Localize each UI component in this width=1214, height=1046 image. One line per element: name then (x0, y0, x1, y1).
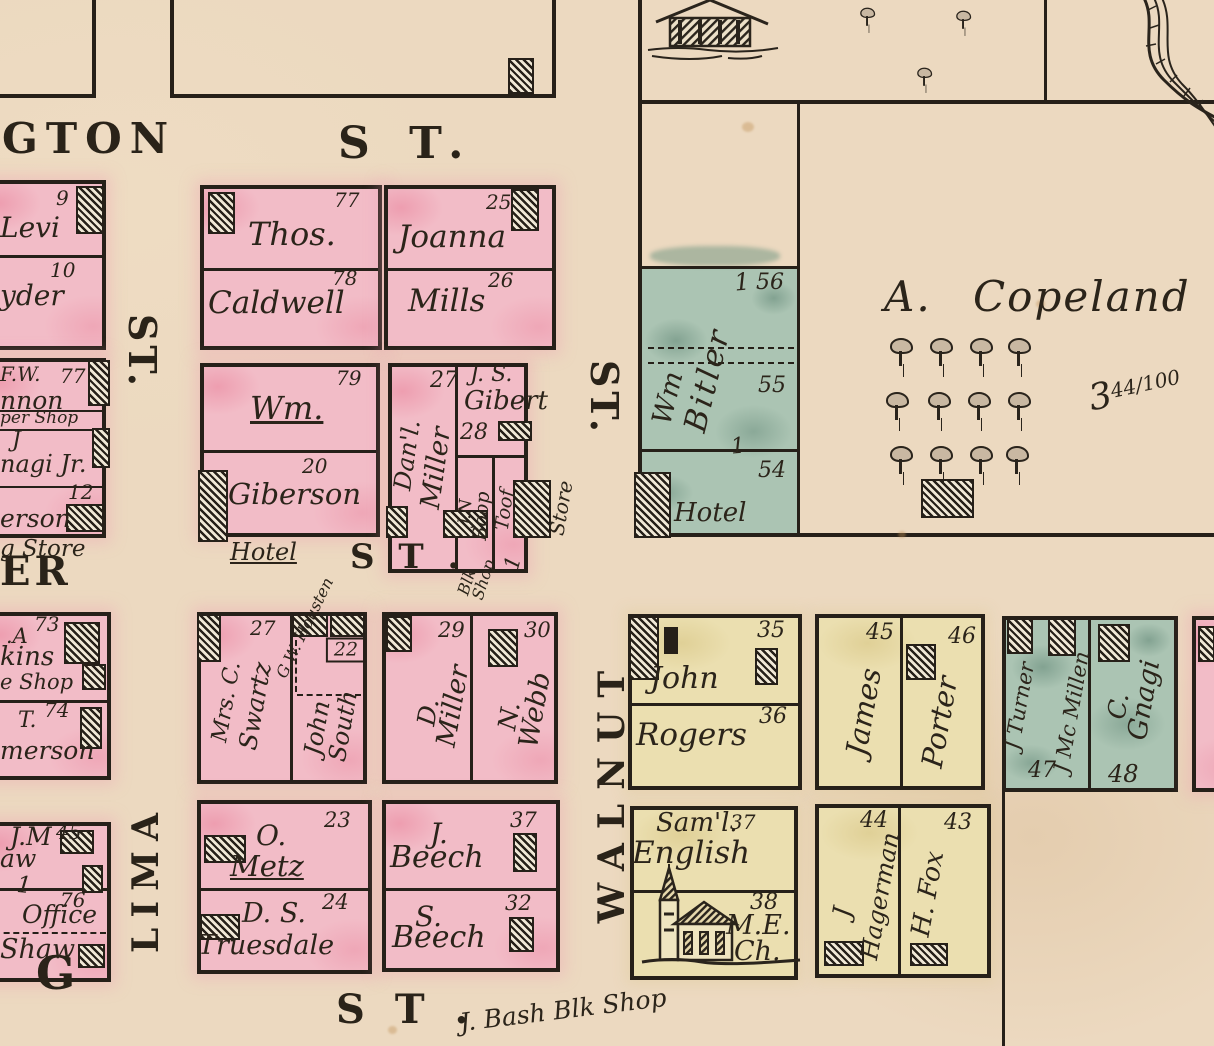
building-footprint (921, 479, 974, 518)
acreage: 344/100 (1086, 363, 1185, 418)
building-footprint (664, 627, 678, 654)
building-footprint (488, 629, 518, 667)
lot-number: 37 (730, 812, 755, 832)
building-footprint (198, 470, 228, 542)
lot-number: 55 (758, 375, 786, 397)
building-footprint (64, 622, 100, 664)
owner-name: yder (0, 282, 64, 310)
lot-number: 77 (334, 190, 359, 210)
owner-name: Shaw (0, 936, 75, 963)
annotation-cooper-shop: per Shop (0, 410, 78, 427)
tree-icon (1008, 338, 1032, 370)
lot-number: 48 (1108, 762, 1139, 786)
lot-number: 35 (757, 620, 785, 642)
lot-number: 44 (860, 810, 888, 832)
building-footprint (508, 58, 534, 94)
owner-name: kins (0, 644, 54, 670)
house-sketch-icon (648, 0, 778, 64)
street-label-st-middle: S T . (350, 540, 465, 574)
lot-line (898, 806, 901, 976)
building-footprint (330, 614, 365, 637)
acreage-fraction: 44/100 (1108, 365, 1182, 403)
tree-icon (970, 338, 994, 370)
owner-name: Caldwell (208, 288, 345, 319)
building-footprint (66, 504, 104, 532)
tree-icon (1006, 446, 1030, 478)
building-footprint (1098, 624, 1130, 662)
building-footprint (92, 428, 110, 468)
lot-number: 36 (759, 706, 787, 728)
owner-name: J (12, 430, 21, 452)
building-footprint (1198, 626, 1214, 662)
owner-name: Thos. (248, 218, 336, 250)
lot-number: 30 (524, 620, 551, 641)
annotation-bash-blk-shop: J. Bash Blk Shop (458, 985, 667, 1035)
lot-number: 32 (505, 893, 532, 914)
owner-name: Beech (390, 843, 484, 873)
tree-icon (970, 446, 994, 478)
property-line (1002, 792, 1005, 1046)
lot-number: 25 (486, 192, 511, 212)
annotation-shoe-shop: e Shop (0, 672, 73, 693)
lot-line (900, 616, 903, 788)
lot-line (204, 450, 376, 453)
survey-mark: 1 (733, 269, 750, 294)
building-footprint (208, 192, 235, 234)
tree-icon (890, 446, 914, 478)
lot-number: 27 (250, 618, 275, 638)
lot-number: 22 (326, 638, 366, 663)
building-footprint (386, 616, 412, 652)
lot-line (1088, 618, 1091, 790)
owner-name: nagi Jr. (0, 452, 87, 476)
owner-name: Boop (471, 491, 493, 541)
lot-number: 27 (430, 370, 458, 392)
owner-name: Metz (230, 852, 304, 881)
owner-name: erson (0, 506, 71, 531)
building-footprint (509, 917, 534, 952)
lot-number: 10 (50, 260, 75, 280)
street-label-st-left: ST. (123, 314, 161, 390)
tree-icon (930, 338, 954, 370)
block-top-left (0, 0, 96, 98)
shrub-icon (860, 8, 876, 29)
owner-name: F.W. (0, 364, 41, 384)
street-label-st-right: ST. (585, 360, 623, 436)
block-line (638, 533, 1214, 537)
owner-name: Rogers (636, 720, 747, 751)
lot-line (797, 102, 800, 533)
tree-icon (928, 392, 952, 424)
lot-number: 77 (60, 366, 85, 386)
tree-icon (968, 392, 992, 424)
survey-mark: 1 (730, 435, 746, 458)
owner-name: Gibert (464, 388, 548, 414)
lot-number: 23 (324, 810, 351, 831)
owner-name: Wm. (250, 392, 323, 424)
annotation-hotel: Hotel (674, 500, 746, 526)
lot-number: 74 (44, 700, 69, 720)
lot-number: 37 (510, 810, 537, 831)
lot-line (642, 266, 797, 269)
owner-name: Truesdale (198, 932, 334, 959)
owner-name: English (632, 838, 750, 869)
lot-number: 45 (56, 822, 81, 842)
lot-line (388, 268, 552, 271)
building-footprint (910, 943, 948, 966)
owner-name: Giberson (228, 480, 361, 509)
paper-stain (898, 531, 906, 538)
building-footprint (82, 865, 103, 893)
lot-number: 24 (322, 892, 349, 913)
lot-line (470, 614, 473, 782)
building-footprint (88, 360, 110, 406)
owner-name: D. S. (242, 900, 306, 927)
annotation-drug-store: g Store (0, 538, 86, 561)
lot-number: 79 (336, 368, 361, 388)
owner-name: O. (256, 822, 286, 850)
building-footprint (755, 648, 778, 685)
tree-icon (890, 338, 914, 370)
lot-number: 26 (488, 270, 513, 290)
annotation-office: Office (22, 902, 97, 927)
street-label-walnut: WALNUT (594, 657, 630, 923)
owner-name: merson (0, 738, 94, 763)
block-line (1044, 0, 1047, 100)
lot-number: 45 (866, 622, 894, 644)
lot-number: 46 (948, 626, 976, 648)
building-footprint (386, 506, 408, 538)
paper-stain (742, 122, 754, 132)
owner-name: T. (18, 710, 36, 732)
shrub-icon (917, 68, 933, 89)
owner-name: John (650, 664, 719, 694)
owner-name: Levi (0, 214, 60, 242)
building-footprint (76, 186, 104, 234)
annotation-hotel: Hotel (230, 540, 297, 564)
street-label-st-bottom: S T . (336, 990, 476, 1030)
street-label-st-top: S T. (338, 122, 475, 166)
building-footprint (498, 421, 532, 441)
river-icon (1098, 0, 1214, 153)
block-top-second (170, 0, 556, 98)
building-footprint (78, 944, 105, 968)
shrub-icon (956, 11, 972, 32)
lot-number: 43 (944, 812, 972, 834)
owner-name: Joanna (398, 222, 506, 253)
building-footprint (1007, 618, 1033, 654)
lot-number: 56 (756, 272, 784, 294)
teal-smudge (650, 246, 780, 266)
lot-number: 20 (302, 456, 327, 476)
lot-line (384, 888, 558, 891)
owner-name: Mills (408, 286, 485, 317)
tree-icon (930, 446, 954, 478)
tree-icon (886, 392, 910, 424)
owner-name: J. S. (470, 364, 512, 386)
lot-number: 54 (758, 460, 786, 482)
building-footprint (197, 614, 221, 662)
lot-number: 12 (68, 482, 93, 502)
building-footprint (82, 664, 106, 690)
lot-line (642, 449, 797, 452)
owner-name: Beech (392, 923, 486, 953)
plat-map: GTON S T. ST. ST. ER S T . WALNUT LIMA G… (0, 0, 1214, 1046)
building-footprint (513, 833, 537, 872)
street-label-washington: GTON (2, 118, 176, 160)
owner-name: Sam'l. (656, 810, 738, 836)
building-footprint (511, 189, 539, 231)
church-label: Ch. (734, 938, 781, 965)
tree-icon (1008, 392, 1032, 424)
owner-name: aw (0, 846, 36, 871)
lot-number: 9 (56, 188, 69, 208)
building-footprint (634, 472, 671, 538)
lot-number: 29 (438, 620, 465, 641)
survey-mark: 1 (16, 874, 33, 898)
lot-number: 73 (34, 614, 59, 634)
lot-number: 28 (460, 422, 488, 444)
church-label: M.E. (726, 912, 791, 939)
owner-name: A. Copeland (884, 276, 1191, 318)
street-label-lima: LIMA (128, 803, 164, 953)
